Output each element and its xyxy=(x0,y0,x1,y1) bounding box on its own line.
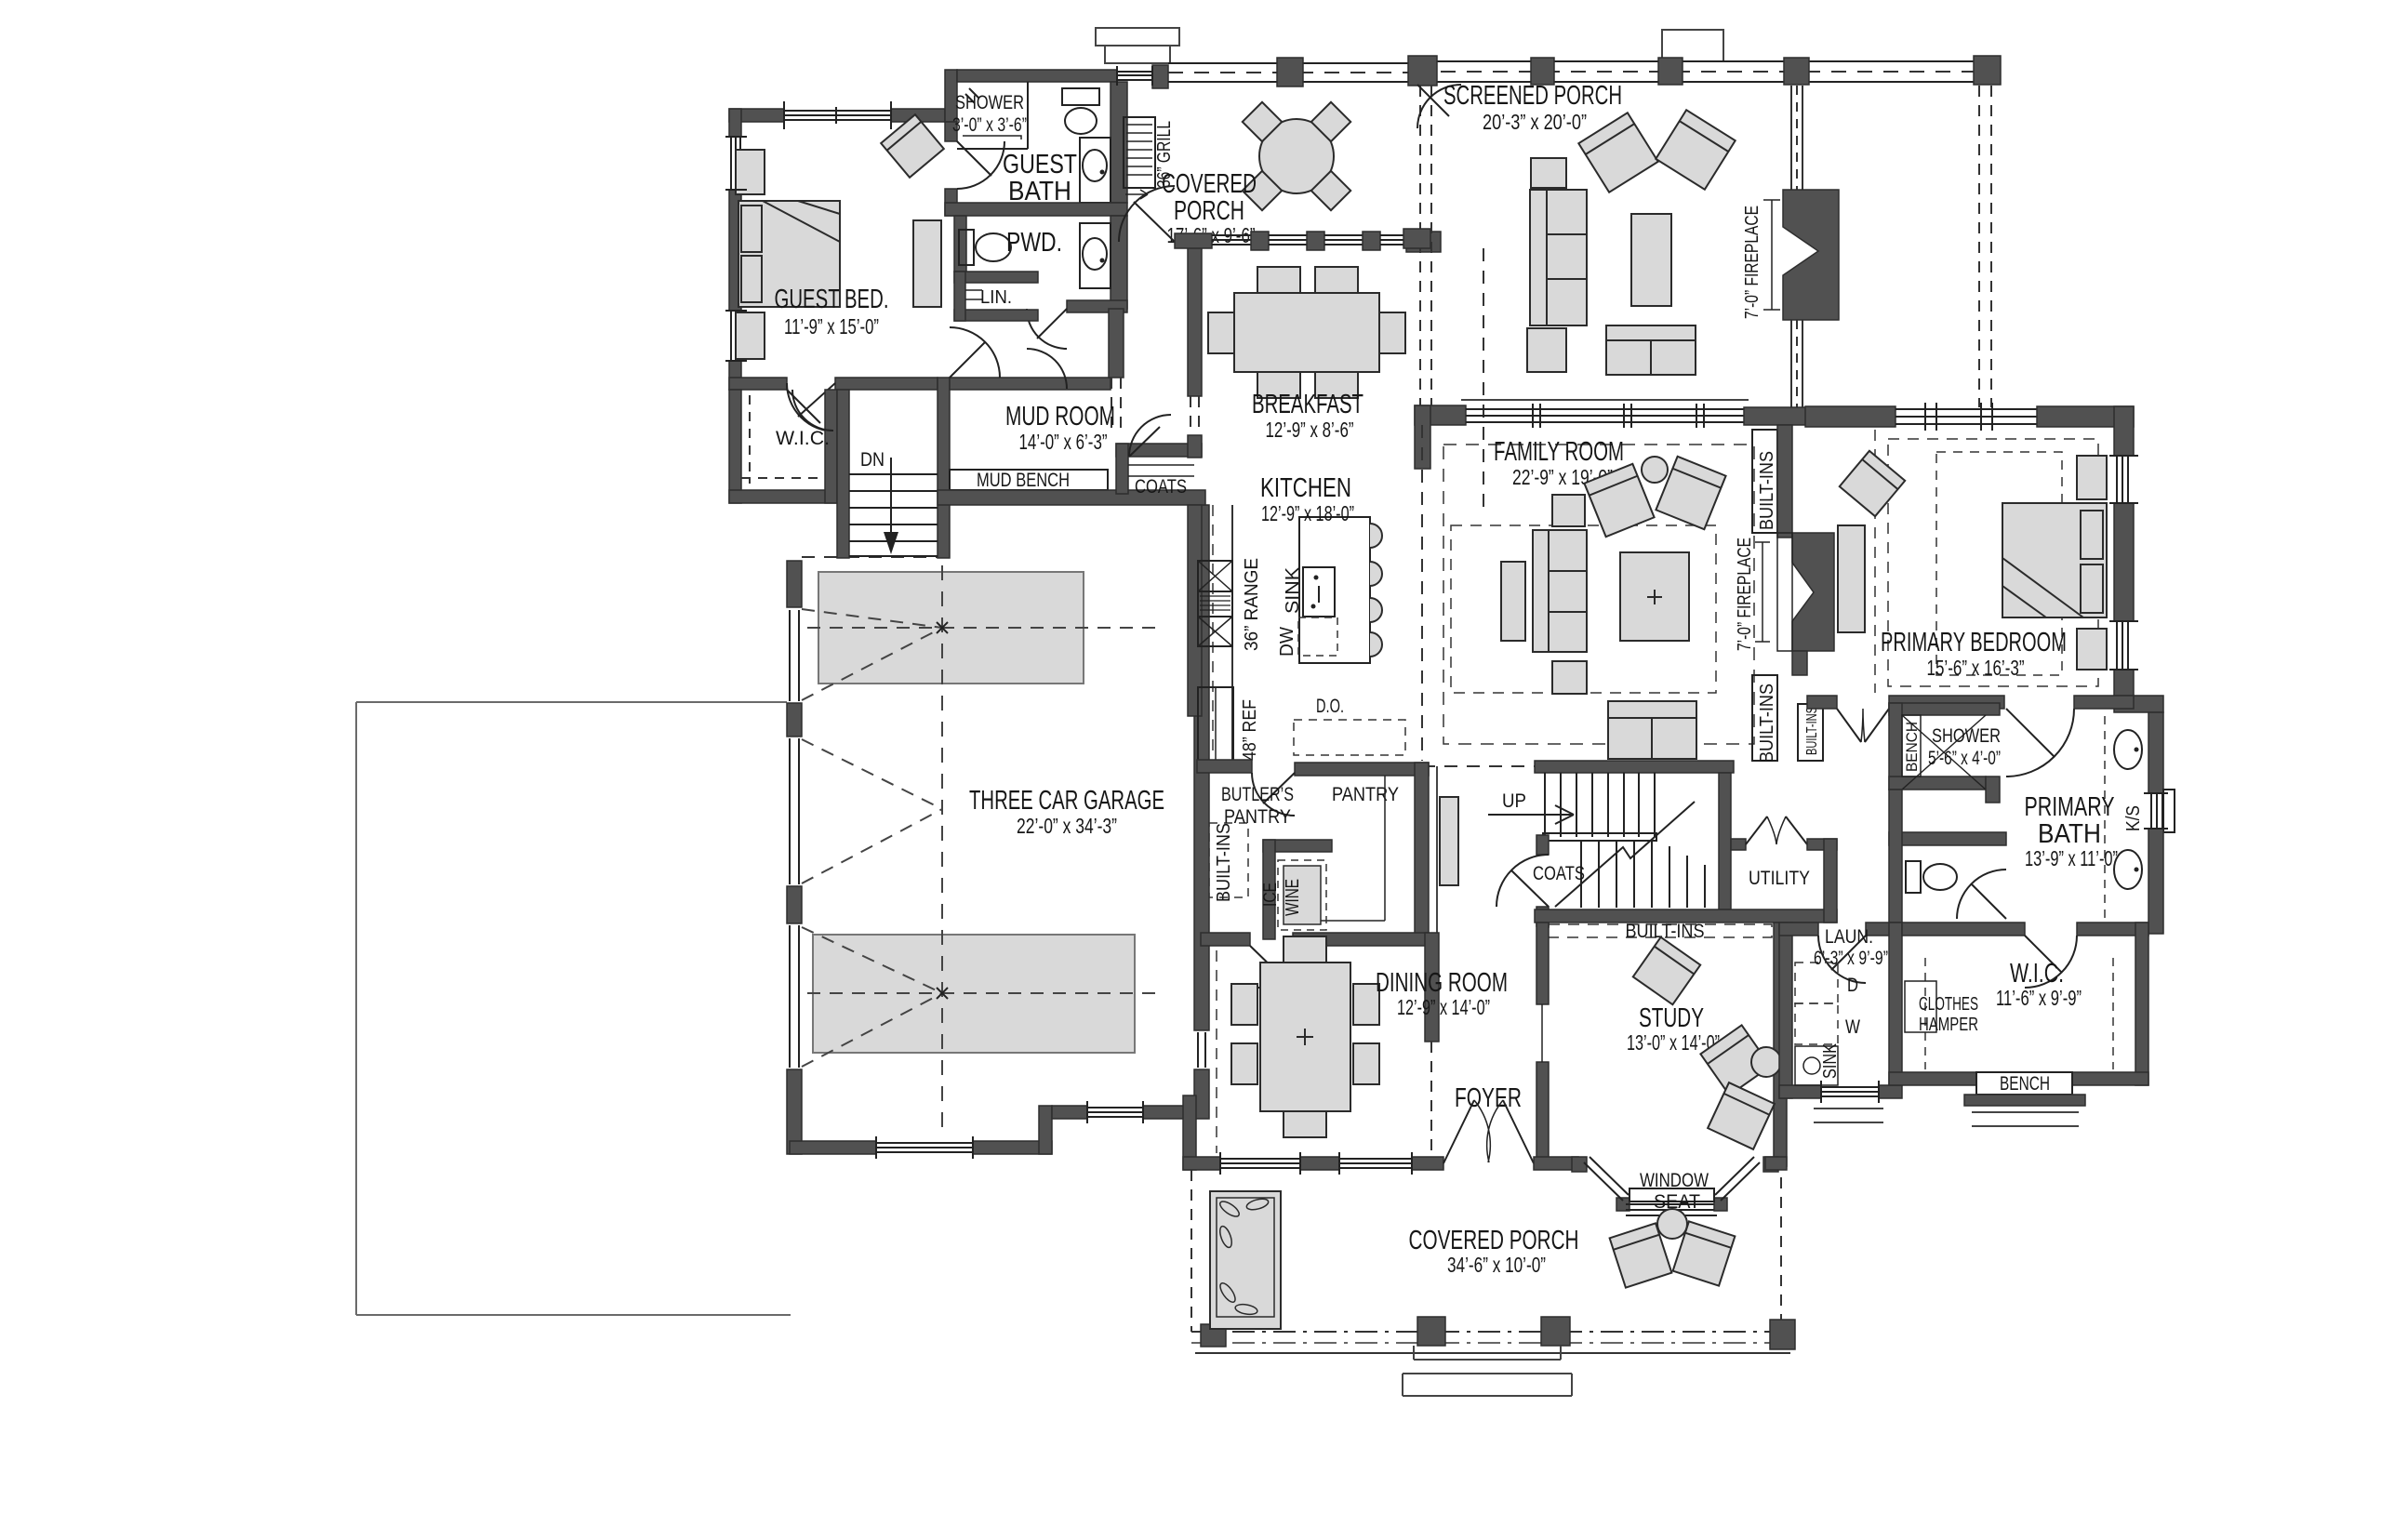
svg-text:K/S: K/S xyxy=(2123,805,2144,831)
svg-text:BENCH: BENCH xyxy=(2000,1073,2050,1095)
svg-text:DW: DW xyxy=(1277,627,1297,657)
svg-text:SINK: SINK xyxy=(1283,566,1303,614)
svg-text:HAMPER: HAMPER xyxy=(1919,1015,1978,1035)
svg-text:BUILT-INS: BUILT-INS xyxy=(1757,684,1777,763)
svg-text:11’-6” x 9’-9”: 11’-6” x 9’-9” xyxy=(1996,986,2082,1010)
svg-text:15’-6” x 16’-3”: 15’-6” x 16’-3” xyxy=(1927,656,2025,680)
svg-text:6’-3” x 9’-9”: 6’-3” x 9’-9” xyxy=(1814,948,1888,969)
svg-text:BREAKFAST: BREAKFAST xyxy=(1252,390,1363,419)
svg-text:BUILT-INS: BUILT-INS xyxy=(1804,707,1820,755)
svg-text:12’-9” x 14’-0”: 12’-9” x 14’-0” xyxy=(1397,995,1490,1019)
svg-text:MUD ROOM: MUD ROOM xyxy=(1005,402,1115,431)
svg-text:STUDY: STUDY xyxy=(1639,1003,1704,1033)
svg-text:13’-9” x 11’-0”: 13’-9” x 11’-0” xyxy=(2025,846,2118,870)
svg-text:SHOWER: SHOWER xyxy=(1932,725,2001,747)
svg-text:LAUN.: LAUN. xyxy=(1825,926,1873,948)
svg-text:WINE: WINE xyxy=(1283,879,1303,916)
svg-text:BUILT-INS: BUILT-INS xyxy=(1626,921,1705,942)
svg-text:GUEST: GUEST xyxy=(1003,150,1077,179)
svg-text:22’-0” x 34’-3”: 22’-0” x 34’-3” xyxy=(1017,814,1117,838)
svg-text:SCREENED PORCH: SCREENED PORCH xyxy=(1443,81,1622,111)
svg-text:BUILT-INS: BUILT-INS xyxy=(1214,823,1234,902)
svg-text:UTILITY: UTILITY xyxy=(1749,868,1810,889)
svg-text:PRIMARY: PRIMARY xyxy=(2025,792,2115,822)
svg-text:48” REF: 48” REF xyxy=(1240,699,1260,761)
svg-text:W.I.C.: W.I.C. xyxy=(776,428,830,449)
svg-text:FAMILY ROOM: FAMILY ROOM xyxy=(1494,437,1624,467)
svg-text:11’-9” x 15’-0”: 11’-9” x 15’-0” xyxy=(784,314,879,339)
svg-text:COATS: COATS xyxy=(1533,863,1585,884)
svg-text:SHOWER: SHOWER xyxy=(955,92,1024,113)
svg-text:PANTRY: PANTRY xyxy=(1332,784,1399,805)
svg-text:DN: DN xyxy=(860,449,885,471)
svg-text:W: W xyxy=(1845,1016,1860,1038)
svg-text:7’-0” FIREPLACE: 7’-0” FIREPLACE xyxy=(1735,538,1755,651)
svg-text:BATH: BATH xyxy=(2038,819,2101,849)
svg-text:W.I.C.: W.I.C. xyxy=(2010,959,2064,989)
svg-text:34’-6” x 10’-0”: 34’-6” x 10’-0” xyxy=(1447,1253,1546,1277)
svg-text:CLOTHES: CLOTHES xyxy=(1919,994,1978,1015)
svg-text:7’-0” FIREPLACE: 7’-0” FIREPLACE xyxy=(1742,206,1762,319)
svg-text:KITCHEN: KITCHEN xyxy=(1260,473,1351,503)
svg-text:20’-3” x 20’-0”: 20’-3” x 20’-0” xyxy=(1483,110,1587,134)
svg-text:DINING ROOM: DINING ROOM xyxy=(1376,968,1508,998)
svg-text:UP: UP xyxy=(1502,790,1526,812)
svg-text:THREE CAR GARAGE: THREE CAR GARAGE xyxy=(969,786,1164,816)
svg-text:LIN.: LIN. xyxy=(980,287,1012,308)
svg-text:PANTRY: PANTRY xyxy=(1224,806,1291,828)
svg-text:PORCH: PORCH xyxy=(1174,196,1244,226)
svg-text:3’-0” x 3’-6”: 3’-0” x 3’-6” xyxy=(952,114,1027,136)
svg-text:WINDOW: WINDOW xyxy=(1640,1170,1709,1191)
svg-text:BATH: BATH xyxy=(1008,177,1071,206)
svg-text:PWD.: PWD. xyxy=(1006,228,1062,258)
svg-text:BUTLER’S: BUTLER’S xyxy=(1221,784,1294,805)
svg-text:D: D xyxy=(1847,975,1858,996)
svg-text:MUD BENCH: MUD BENCH xyxy=(977,470,1070,491)
svg-text:36” RANGE: 36” RANGE xyxy=(1242,558,1262,651)
svg-text:SINK: SINK xyxy=(1820,1042,1841,1079)
svg-text:BUILT-INS: BUILT-INS xyxy=(1757,451,1777,530)
svg-text:12’-9” x 8’-6”: 12’-9” x 8’-6” xyxy=(1266,418,1354,442)
svg-text:D.O.: D.O. xyxy=(1316,696,1344,717)
svg-text:BENCH: BENCH xyxy=(1903,722,1921,772)
svg-text:COVERED: COVERED xyxy=(1162,169,1257,199)
svg-text:14’-0” x 6’-3”: 14’-0” x 6’-3” xyxy=(1019,430,1108,454)
svg-text:5’-6” x 4’-0”: 5’-6” x 4’-0” xyxy=(1928,748,2001,769)
svg-text:COVERED PORCH: COVERED PORCH xyxy=(1409,1226,1579,1255)
svg-text:GUEST BED.: GUEST BED. xyxy=(775,285,889,314)
svg-text:COATS: COATS xyxy=(1135,476,1187,498)
svg-text:PRIMARY BEDROOM: PRIMARY BEDROOM xyxy=(1881,628,2067,657)
svg-text:12’-9” x 18’-0”: 12’-9” x 18’-0” xyxy=(1261,501,1354,525)
svg-text:ICE: ICE xyxy=(1260,883,1281,907)
svg-text:FOYER: FOYER xyxy=(1455,1083,1522,1113)
